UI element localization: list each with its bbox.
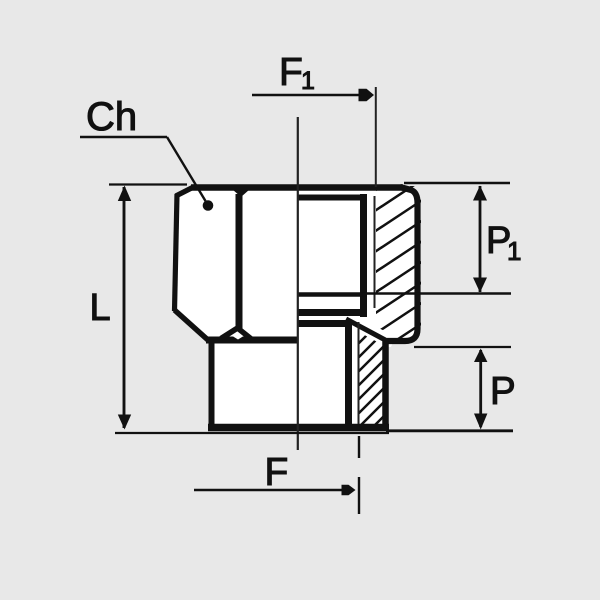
svg-text:P: P — [490, 370, 516, 413]
svg-text:Ch: Ch — [86, 95, 137, 139]
svg-text:L: L — [90, 287, 111, 329]
svg-text:F: F — [279, 51, 303, 94]
svg-text:1: 1 — [507, 236, 521, 266]
svg-text:1: 1 — [301, 67, 315, 95]
svg-text:F: F — [265, 451, 289, 494]
